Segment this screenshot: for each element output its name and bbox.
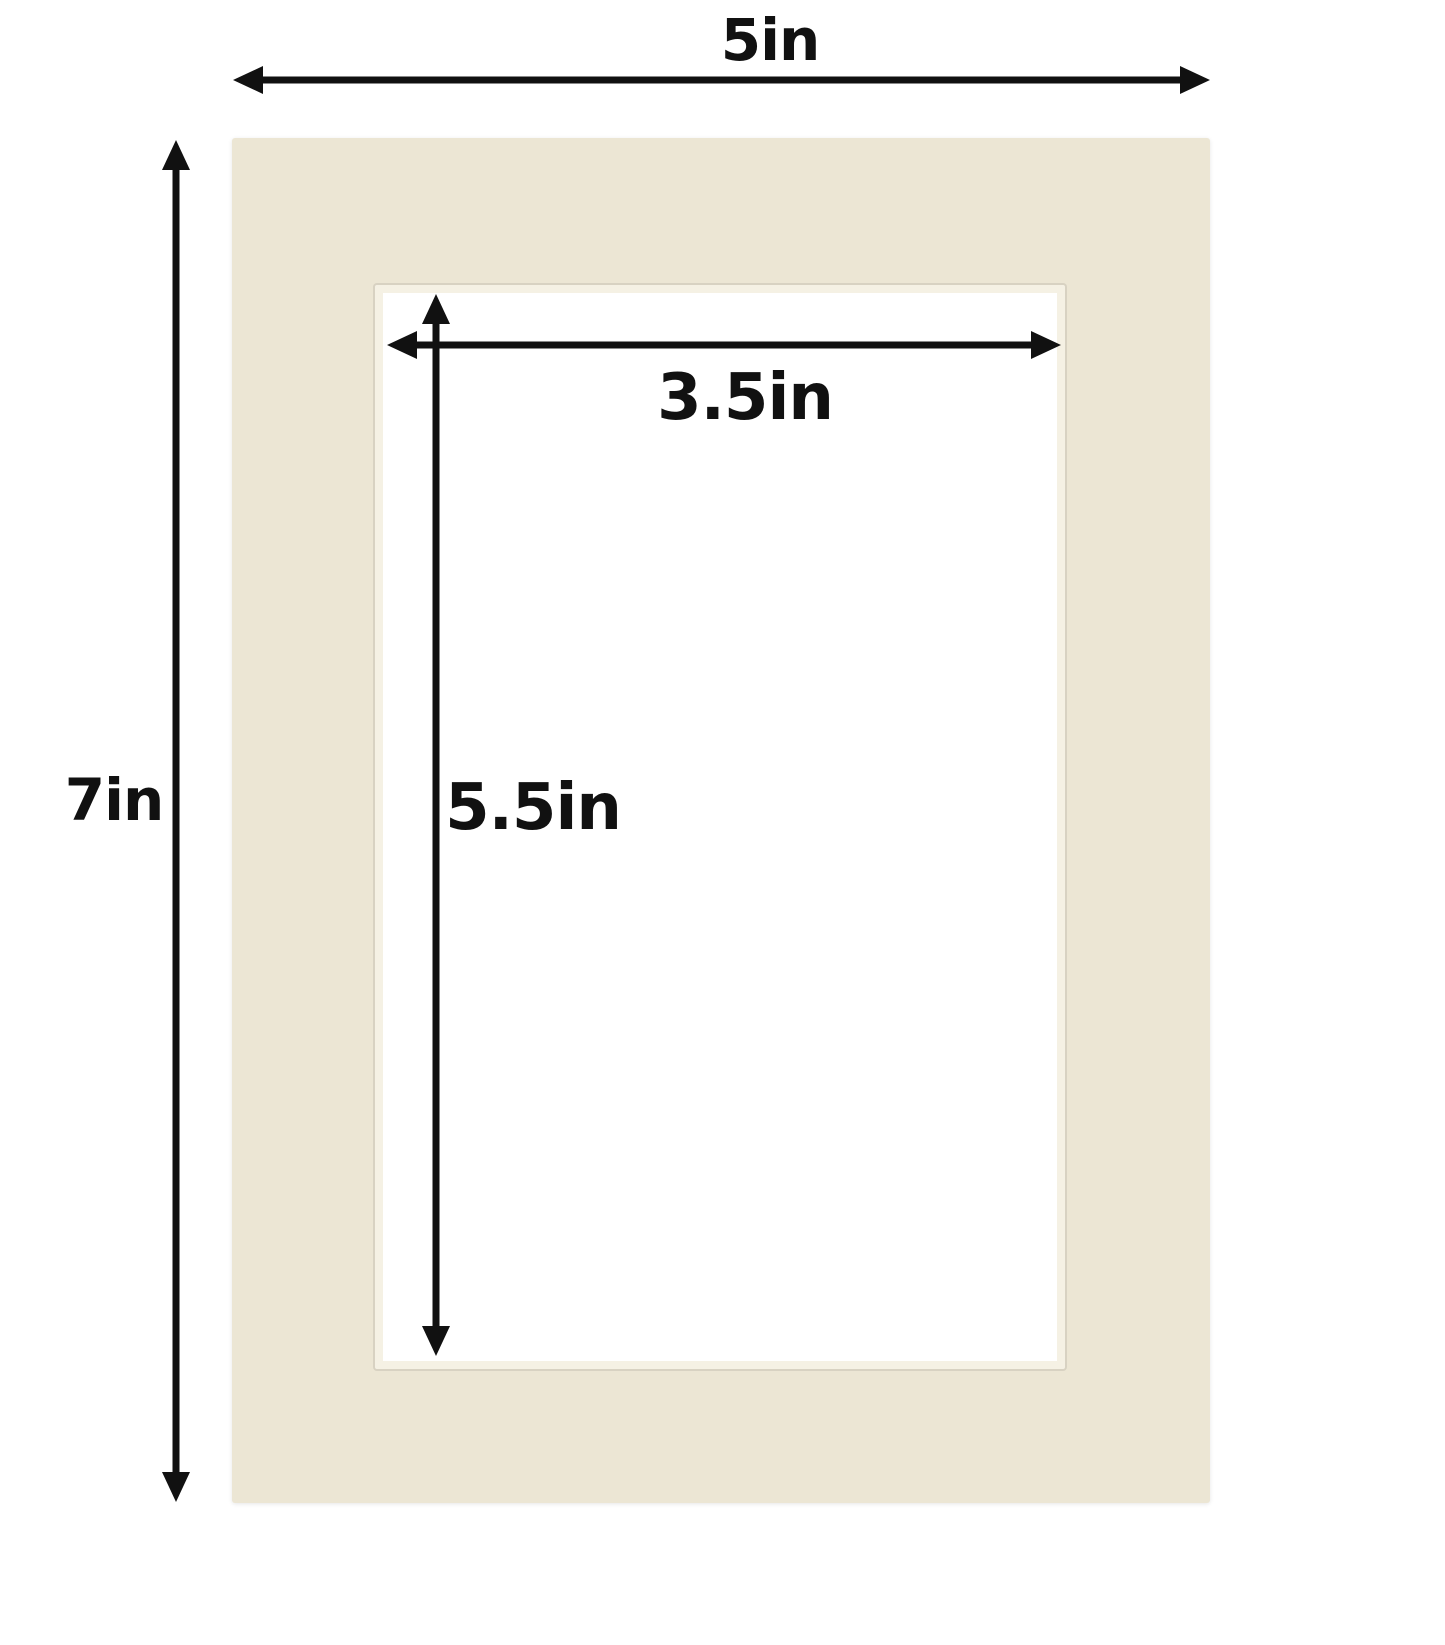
outer-height-dimension-arrow	[159, 140, 193, 1502]
arrow-line	[173, 164, 180, 1478]
diagram-canvas: 5in 7in 3.5in 5.5in	[0, 0, 1445, 1645]
arrow-head-right-icon	[1031, 331, 1061, 359]
arrow-line	[411, 342, 1037, 349]
arrow-head-down-icon	[422, 1326, 450, 1356]
arrow-line	[433, 318, 440, 1332]
opening-width-dimension-arrow	[387, 328, 1061, 362]
outer-height-label: 7in	[65, 771, 164, 829]
arrow-head-down-icon	[162, 1472, 190, 1502]
opening-width-label: 3.5in	[657, 366, 833, 430]
outer-width-label: 5in	[721, 11, 820, 69]
opening-height-label: 5.5in	[445, 776, 621, 840]
arrow-head-right-icon	[1180, 66, 1210, 94]
arrow-line	[257, 77, 1186, 84]
